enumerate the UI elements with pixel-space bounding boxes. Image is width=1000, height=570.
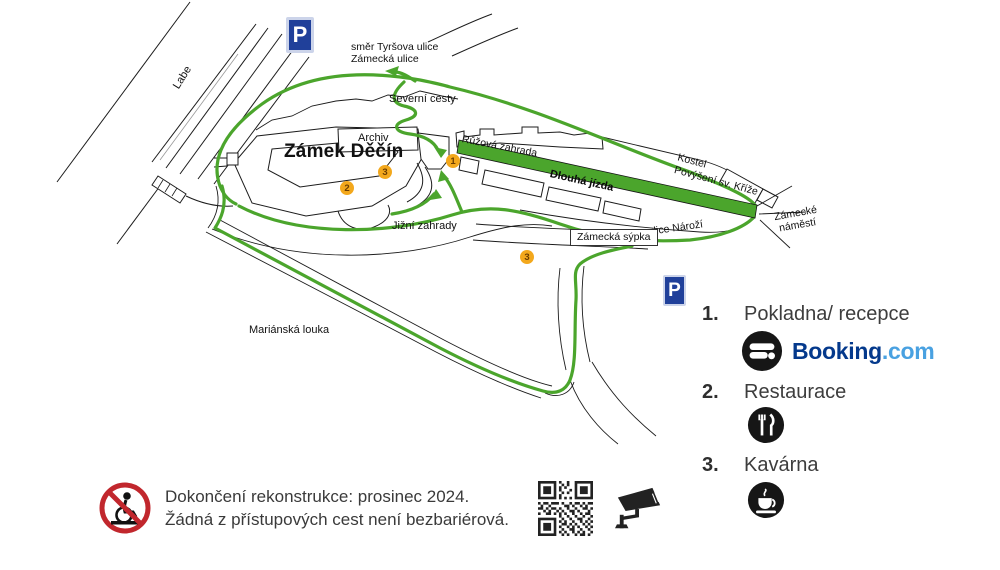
cctv-camera-icon [610, 486, 668, 534]
cafe-icon [747, 481, 785, 519]
legend-item-3-number: 3. [702, 454, 719, 477]
label-severni-cesty: Severní cesty [389, 93, 456, 105]
label-jizni-zahrady: Jižní zahrady [392, 220, 457, 232]
no-wheelchair-access-icon [99, 482, 151, 534]
label-smer-line2: Zámecká ulice [351, 53, 438, 65]
footer-line2: Žádná z přístupových cest není bezbariér… [165, 510, 509, 530]
castle-map-poster: Labe směr Tyršova ulice Zámecká ulice Se… [0, 0, 1000, 570]
label-marianska-louka: Mariánská louka [249, 324, 329, 336]
parking-sign-north: P [286, 17, 314, 53]
map-marker-2: 2 [340, 181, 354, 195]
legend-item-3-label: Kavárna [744, 454, 819, 477]
qr-code [538, 481, 593, 536]
legend-item-1-label: Pokladna/ recepce [744, 303, 910, 326]
restaurant-icon [747, 406, 785, 444]
booking-com-suffix: .com [882, 338, 934, 364]
booking-com-logo: Booking.com [792, 338, 934, 365]
legend-item-1-number: 1. [702, 303, 719, 326]
legend-item-2-label: Restaurace [744, 381, 846, 404]
booking-word: Booking [792, 338, 882, 364]
label-smer-line1: směr Tyršova ulice [351, 41, 438, 53]
parking-sign-south: P [663, 275, 686, 306]
legend-item-2-number: 2. [702, 381, 719, 404]
cash-desk-icon [741, 330, 783, 372]
label-zamek-decin: Zámek Děčín [284, 146, 403, 158]
map-marker-1: 1 [446, 154, 460, 168]
map-marker-3b: 3 [520, 250, 534, 264]
map-marker-3a: 3 [378, 165, 392, 179]
footer-line1: Dokončení rekonstrukce: prosinec 2024. [165, 487, 469, 507]
label-zamecka-sypka: Zámecká sýpka [570, 229, 658, 246]
label-smer-tyrsova: směr Tyršova ulice Zámecká ulice [351, 41, 438, 65]
